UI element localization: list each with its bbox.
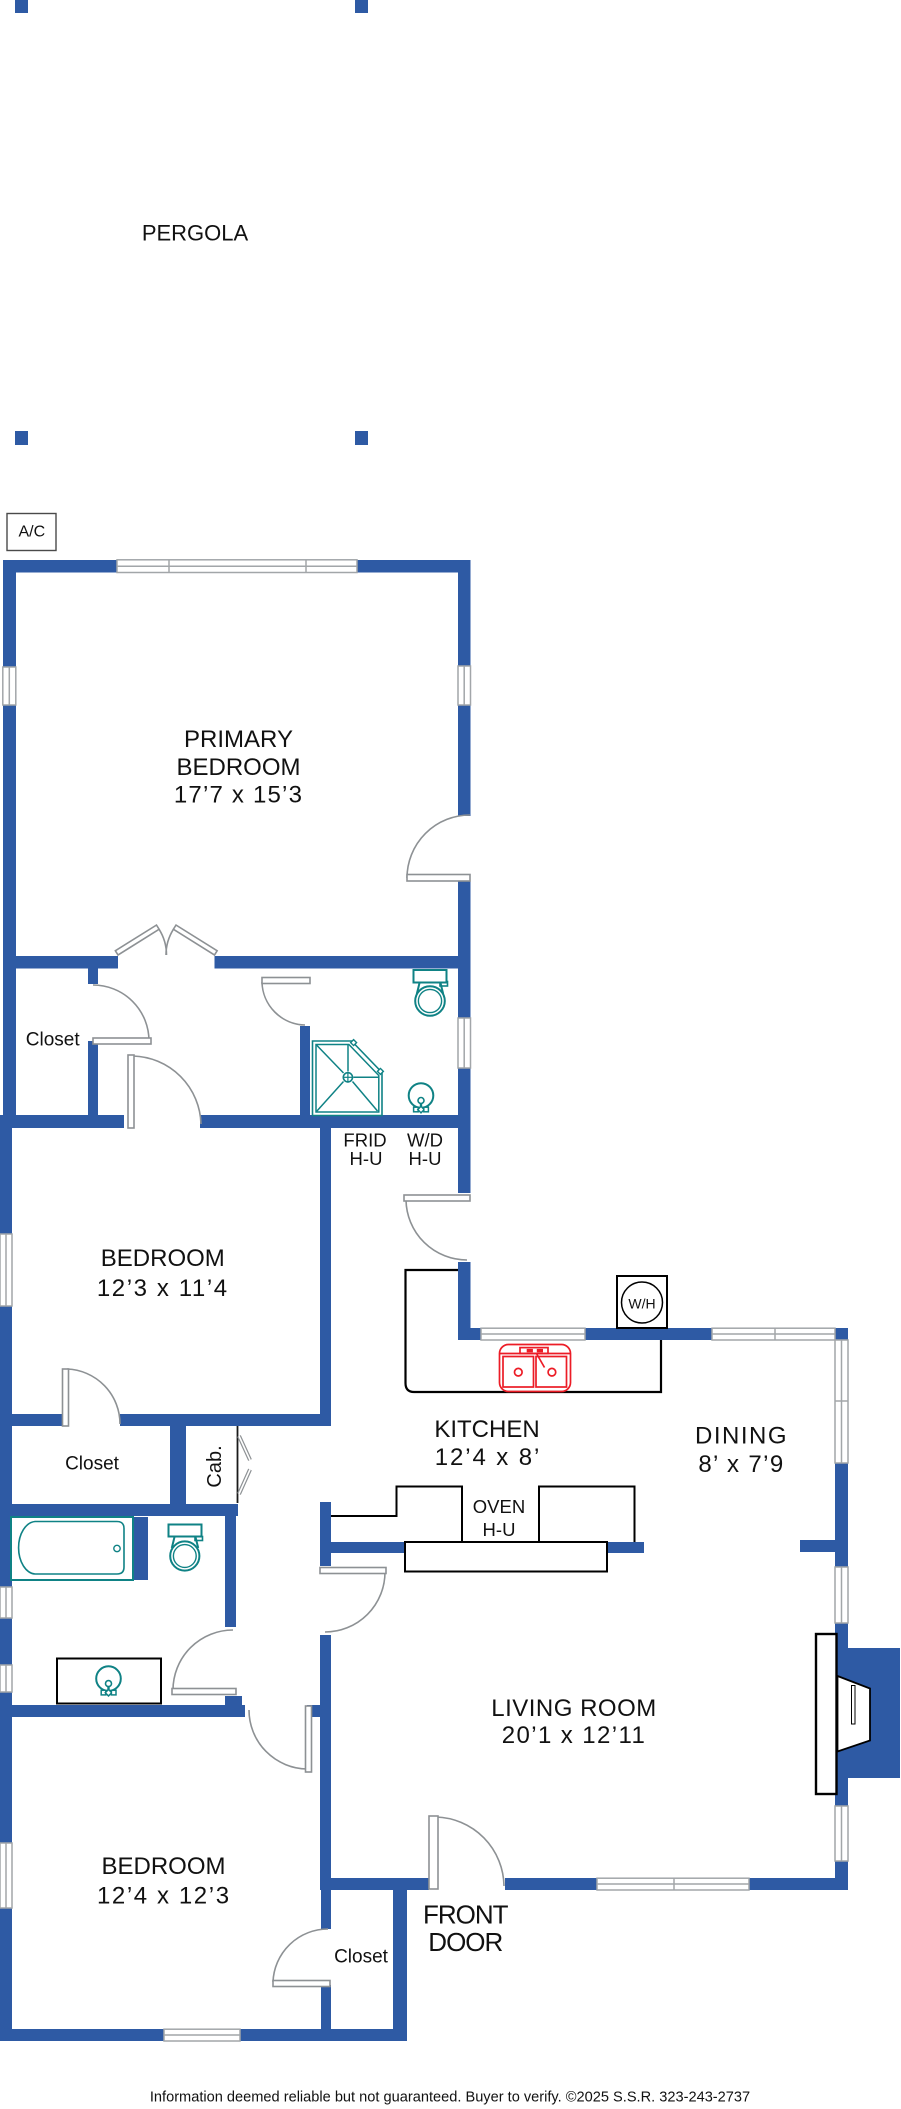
svg-text:BEDROOM: BEDROOM bbox=[101, 1853, 225, 1880]
svg-text:Information deemed reliable bu: Information deemed reliable but not guar… bbox=[150, 2090, 750, 2106]
svg-text:BEDROOM: BEDROOM bbox=[176, 754, 300, 781]
svg-text:DINING: DINING bbox=[695, 1422, 788, 1449]
svg-text:Closet: Closet bbox=[65, 1454, 120, 1475]
svg-text:DOOR: DOOR bbox=[428, 1927, 502, 1957]
svg-text:FRONT: FRONT bbox=[423, 1899, 509, 1929]
svg-text:LIVING ROOM: LIVING ROOM bbox=[491, 1695, 657, 1722]
svg-text:PERGOLA: PERGOLA bbox=[142, 221, 249, 246]
svg-text:8’ x 7’9: 8’ x 7’9 bbox=[698, 1451, 784, 1478]
svg-text:H-U: H-U bbox=[483, 1519, 516, 1540]
svg-text:12’3 x 11’4: 12’3 x 11’4 bbox=[97, 1275, 229, 1302]
svg-text:12’4 x 8’: 12’4 x 8’ bbox=[435, 1444, 542, 1471]
svg-text:H-U: H-U bbox=[409, 1148, 442, 1169]
svg-text:20’1 x 12’11: 20’1 x 12’11 bbox=[502, 1722, 646, 1749]
svg-text:KITCHEN: KITCHEN bbox=[434, 1416, 539, 1443]
svg-text:12’4 x 12’3: 12’4 x 12’3 bbox=[97, 1883, 231, 1910]
svg-text:H-U: H-U bbox=[350, 1148, 383, 1169]
svg-text:W/H: W/H bbox=[628, 1296, 655, 1312]
svg-text:OVEN: OVEN bbox=[473, 1496, 525, 1517]
svg-text:Closet: Closet bbox=[26, 1030, 81, 1051]
svg-text:A/C: A/C bbox=[18, 524, 45, 541]
svg-text:Closet: Closet bbox=[334, 1947, 389, 1968]
svg-text:PRIMARY: PRIMARY bbox=[184, 726, 293, 753]
svg-text:17’7 x 15’3: 17’7 x 15’3 bbox=[174, 782, 303, 809]
svg-text:BEDROOM: BEDROOM bbox=[101, 1245, 225, 1272]
svg-text:Cab.: Cab. bbox=[204, 1445, 226, 1487]
